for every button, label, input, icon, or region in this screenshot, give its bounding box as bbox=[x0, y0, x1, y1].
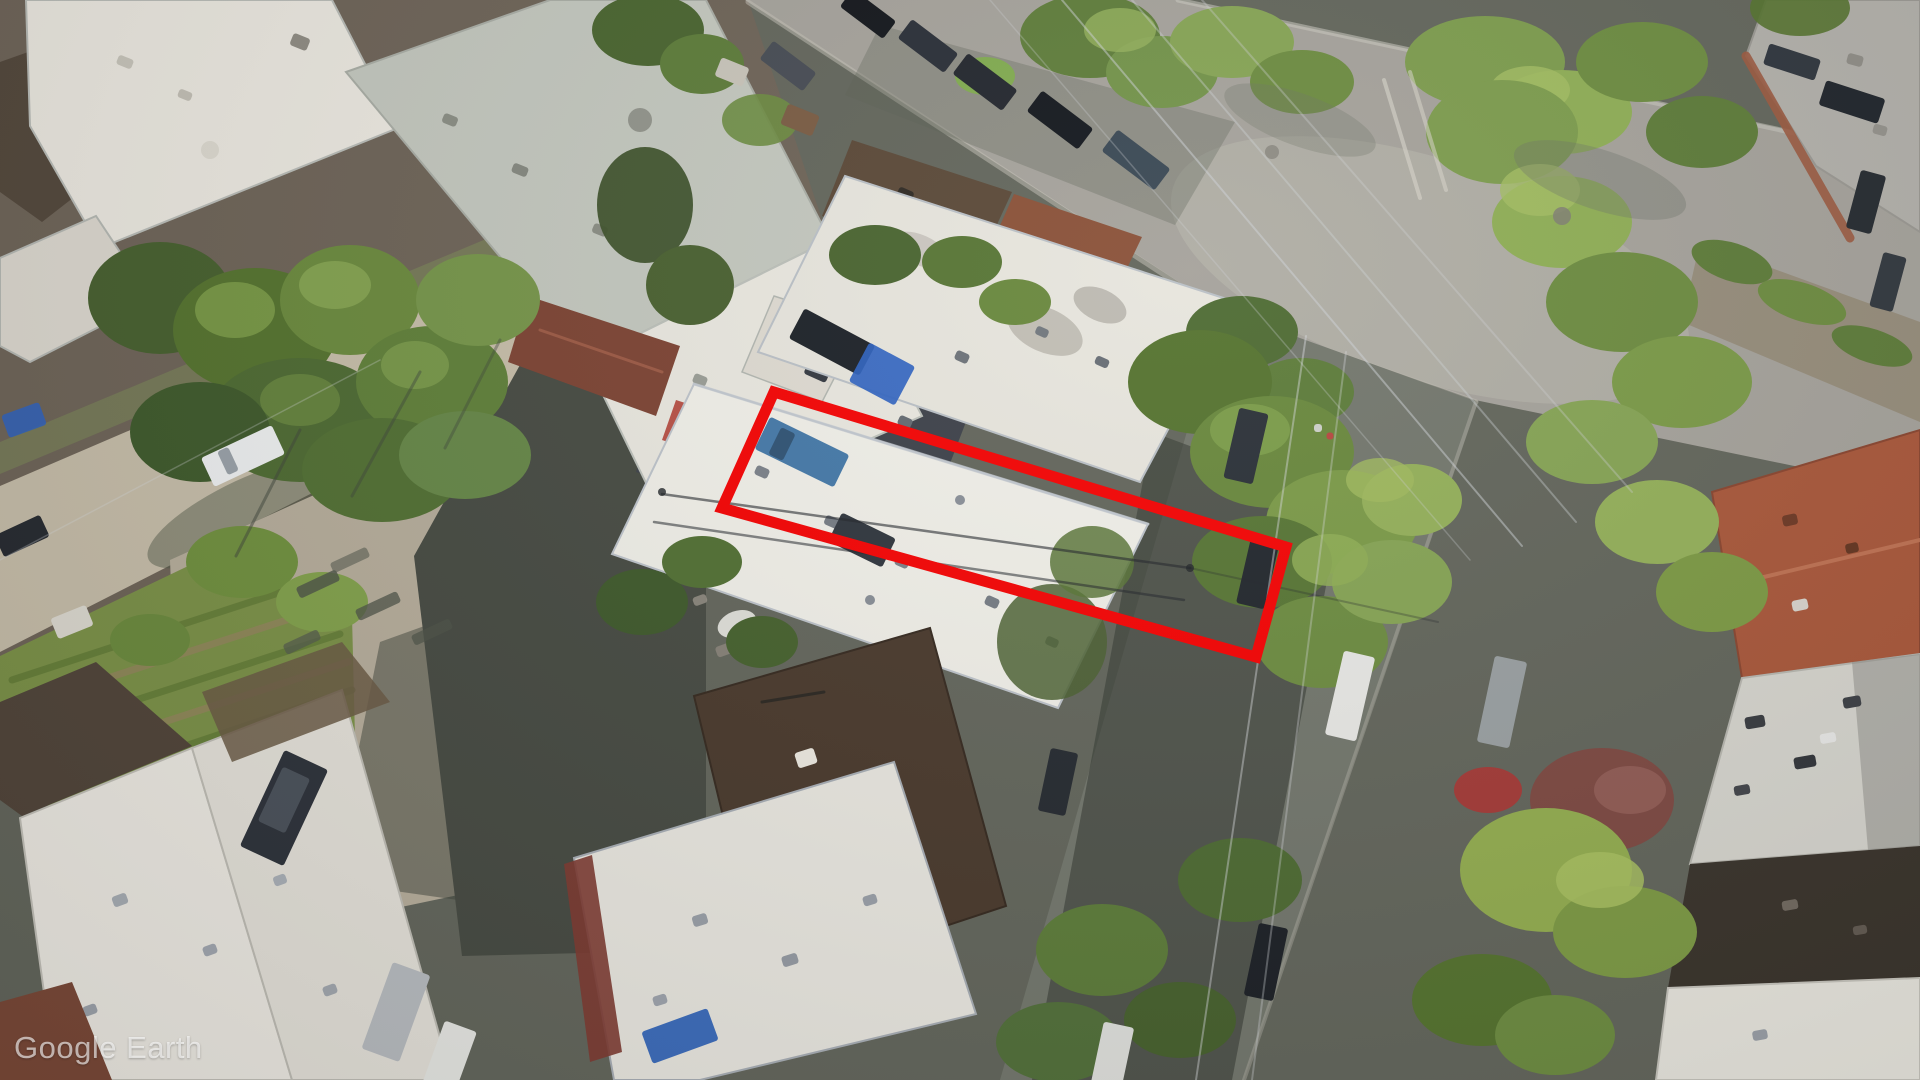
aerial-imagery-canvas[interactable] bbox=[0, 0, 1920, 1080]
utility-pole bbox=[1186, 564, 1194, 572]
tree-canopy bbox=[662, 536, 742, 588]
dark-tar-roof bbox=[1668, 846, 1920, 988]
roof-stain bbox=[201, 141, 219, 159]
yard-bush bbox=[829, 225, 921, 285]
tree-canopy bbox=[1178, 838, 1302, 922]
utility-pole bbox=[658, 488, 666, 496]
tree-canopy bbox=[1036, 904, 1168, 996]
tree-canopy bbox=[726, 616, 798, 668]
google-earth-watermark: Google Earth bbox=[14, 1030, 203, 1066]
tree-canopy bbox=[1595, 480, 1719, 564]
tree-canopy bbox=[1526, 400, 1658, 484]
tree-highlight bbox=[195, 282, 275, 338]
white-roof-bottomright bbox=[1656, 978, 1920, 1080]
tree-highlight bbox=[299, 261, 371, 309]
tree-highlight bbox=[260, 374, 340, 426]
tree-canopy bbox=[646, 245, 734, 325]
tree-canopy bbox=[1124, 982, 1236, 1058]
pedestrian bbox=[1314, 424, 1322, 432]
tree-canopy bbox=[597, 147, 693, 263]
tree-canopy bbox=[416, 254, 540, 346]
garden-bush bbox=[110, 614, 190, 666]
tree-highlight bbox=[1556, 852, 1644, 908]
google-earth-viewport: Google Earth bbox=[0, 0, 1920, 1080]
tree-canopy bbox=[399, 411, 531, 499]
garden-bush bbox=[186, 526, 298, 598]
yard-bush bbox=[979, 279, 1051, 325]
tree-highlight bbox=[1346, 458, 1414, 502]
roof-stain bbox=[628, 108, 652, 132]
red-bush bbox=[1454, 767, 1522, 813]
roof-vent bbox=[955, 495, 965, 505]
tree-canopy bbox=[1656, 552, 1768, 632]
pedestrian bbox=[1327, 433, 1334, 440]
tree-canopy bbox=[1495, 995, 1615, 1075]
roof-vent bbox=[865, 595, 875, 605]
tree-highlight bbox=[1292, 534, 1368, 586]
tree-canopy bbox=[1646, 96, 1758, 168]
yard-bush bbox=[922, 236, 1002, 288]
tree-highlight bbox=[1594, 766, 1666, 814]
manhole-cover bbox=[1265, 145, 1279, 159]
tree-canopy bbox=[1576, 22, 1708, 102]
manhole-cover bbox=[1553, 207, 1571, 225]
